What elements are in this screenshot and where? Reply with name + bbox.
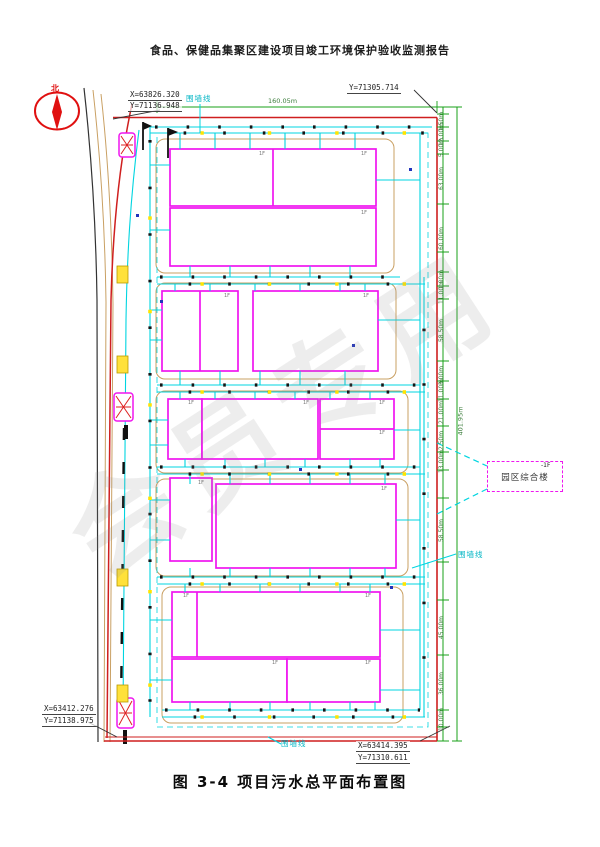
- dimension-segment: 13.00m: [438, 450, 445, 473]
- dimension-segment: 2.50m: [438, 431, 445, 450]
- figure-caption: 图 3-4 项目污水总平面布置图: [0, 771, 580, 792]
- floor-marker: 1F: [365, 594, 371, 599]
- report-page: 会员专用 食品、保健品集聚区建设项目竣工环境保护验收监测报告 图 3-4 项目污…: [0, 0, 600, 847]
- annex-building-label: 园区综合楼: [501, 471, 549, 483]
- dimension-segment: 63.00m: [438, 167, 445, 190]
- floor-marker: 1F: [363, 294, 369, 299]
- annex-floor-label: -1F: [541, 462, 550, 469]
- annex-building-box: 园区综合楼: [487, 461, 563, 492]
- dimension-top-width: 160.05m: [268, 97, 297, 105]
- floor-marker: 1F: [183, 594, 189, 599]
- floor-marker: 1F: [198, 481, 204, 486]
- dimension-segment: 11.00m: [438, 281, 445, 304]
- compass-icon: [35, 93, 79, 131]
- fence-line-label-right: 围墙线: [458, 549, 484, 560]
- coord-bottom-left-y: Y=71138.975: [42, 716, 96, 727]
- floor-marker: 1F: [361, 152, 367, 157]
- coord-top-left-x: X=63826.320: [128, 90, 182, 101]
- coord-top-right-y: Y=71305.714: [347, 83, 401, 94]
- floor-marker: 1F: [379, 401, 385, 406]
- dimension-right-total: 401.95m: [457, 406, 465, 435]
- dimension-segment: 21.00m: [438, 401, 445, 424]
- coord-bottom-right-x: X=63414.395: [356, 741, 410, 752]
- dimension-segment: 60.00m: [438, 227, 445, 250]
- coord-top-left-y: Y=71136.948: [128, 101, 182, 112]
- dimension-segment: 45.00m: [438, 616, 445, 639]
- fence-line-label-top: 围墙线: [186, 93, 212, 104]
- compass-north-label: 北: [51, 83, 59, 94]
- dimension-segment: 58.50m: [438, 319, 445, 342]
- dimension-segment: 58.50m: [438, 519, 445, 542]
- floor-marker: 1F: [188, 401, 194, 406]
- floor-marker: 1F: [224, 294, 230, 299]
- floor-marker: 1F: [365, 661, 371, 666]
- coord-bottom-left-x: X=63412.276: [42, 704, 96, 715]
- coord-bottom-right-y: Y=71310.611: [356, 753, 410, 764]
- dimension-segment: 5.00m: [438, 138, 445, 157]
- dimension-segment: 36.00m: [438, 672, 445, 695]
- dimension-segment: 11.00m: [438, 379, 445, 402]
- dimension-segment: 10.00m: [438, 708, 445, 731]
- floor-marker: 1F: [272, 661, 278, 666]
- floor-marker: 1F: [303, 401, 309, 406]
- floor-marker: 1F: [361, 211, 367, 216]
- floor-marker: 1F: [259, 152, 265, 157]
- floor-marker: 1F: [379, 431, 385, 436]
- page-header-title: 食品、保健品集聚区建设项目竣工环境保护验收监测报告: [0, 42, 600, 58]
- fence-line-label-bottom: 围墙线: [281, 738, 307, 749]
- floor-marker: 1F: [381, 487, 387, 492]
- buildings: [162, 149, 396, 702]
